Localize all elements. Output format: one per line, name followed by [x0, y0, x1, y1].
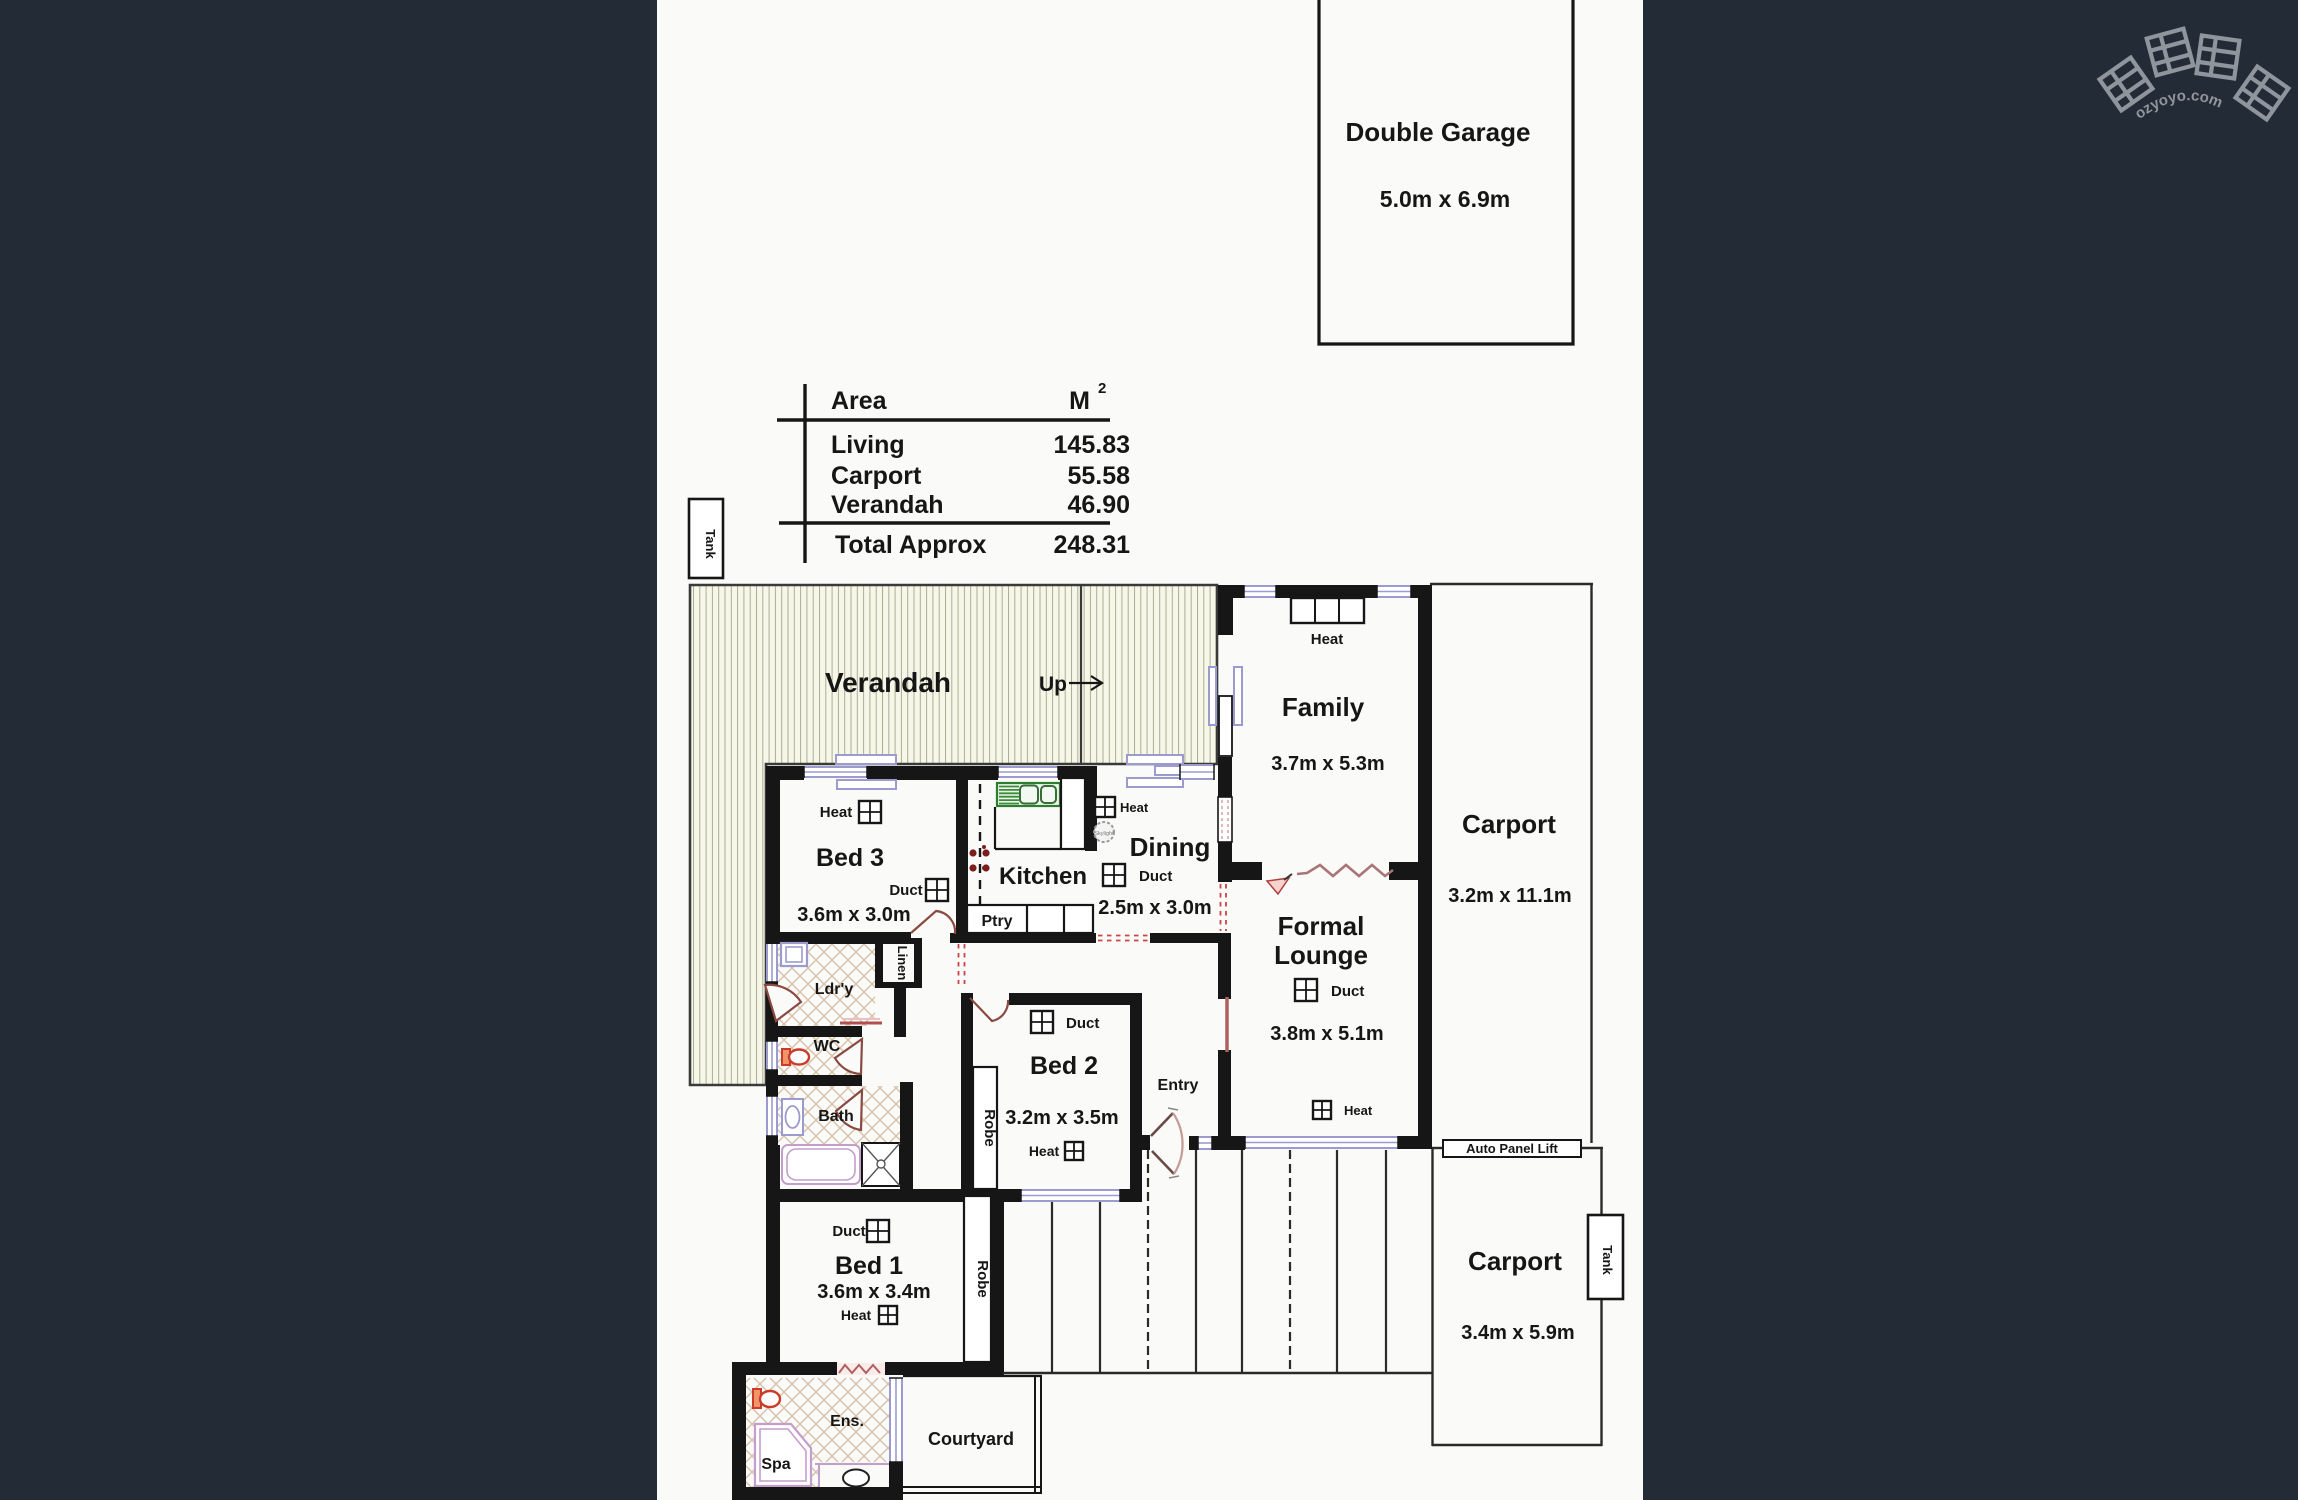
- svg-text:3.7m x 5.3m: 3.7m x 5.3m: [1271, 753, 1384, 775]
- svg-text:Bath: Bath: [818, 1108, 854, 1125]
- svg-text:Verandah: Verandah: [831, 491, 944, 519]
- svg-text:46.90: 46.90: [1067, 491, 1130, 519]
- svg-text:Verandah: Verandah: [825, 667, 951, 698]
- svg-text:WC: WC: [814, 1038, 841, 1055]
- svg-text:Family: Family: [1282, 692, 1365, 722]
- svg-text:Auto Panel Lift: Auto Panel Lift: [1466, 1141, 1558, 1156]
- svg-text:Total Approx: Total Approx: [835, 531, 986, 559]
- svg-text:M: M: [1069, 387, 1090, 415]
- svg-text:Duct: Duct: [889, 882, 922, 899]
- svg-text:Bed 2: Bed 2: [1030, 1052, 1098, 1080]
- svg-text:3.4m x 5.9m: 3.4m x 5.9m: [1461, 1322, 1574, 1344]
- svg-text:Tank: Tank: [703, 529, 718, 559]
- svg-text:Heat: Heat: [1344, 1103, 1373, 1118]
- svg-text:3.6m x 3.4m: 3.6m x 3.4m: [817, 1281, 930, 1303]
- svg-text:3.2m x 3.5m: 3.2m x 3.5m: [1005, 1107, 1118, 1129]
- svg-text:Heat: Heat: [820, 804, 853, 821]
- svg-text:Carport: Carport: [831, 462, 922, 490]
- svg-text:55.58: 55.58: [1067, 462, 1130, 490]
- svg-text:Living: Living: [831, 431, 905, 459]
- svg-text:Ldr'y: Ldr'y: [815, 981, 854, 998]
- svg-text:Bed 1: Bed 1: [835, 1252, 903, 1280]
- svg-text:Heat: Heat: [841, 1307, 872, 1323]
- svg-text:Heat: Heat: [1120, 800, 1149, 815]
- svg-text:Duct: Duct: [1139, 868, 1172, 885]
- svg-text:Robe: Robe: [974, 1260, 991, 1298]
- svg-text:Linen: Linen: [895, 946, 910, 981]
- svg-text:Carport: Carport: [1462, 809, 1556, 839]
- svg-text:Ptry: Ptry: [981, 913, 1012, 930]
- svg-text:2.5m x 3.0m: 2.5m x 3.0m: [1098, 897, 1211, 919]
- svg-text:145.83: 145.83: [1054, 431, 1130, 459]
- svg-text:3.2m x 11.1m: 3.2m x 11.1m: [1448, 885, 1571, 907]
- svg-text:Spa: Spa: [761, 1456, 790, 1473]
- svg-text:3.8m x 5.1m: 3.8m x 5.1m: [1270, 1023, 1383, 1045]
- svg-text:Kitchen: Kitchen: [999, 863, 1087, 890]
- svg-text:Courtyard: Courtyard: [928, 1429, 1014, 1449]
- svg-text:Tank: Tank: [1600, 1245, 1615, 1275]
- svg-text:Lounge: Lounge: [1274, 940, 1368, 970]
- svg-text:Up: Up: [1039, 673, 1067, 696]
- svg-text:Area: Area: [831, 387, 888, 415]
- svg-text:Dining: Dining: [1130, 832, 1211, 862]
- svg-text:Robe: Robe: [981, 1109, 998, 1147]
- svg-text:5.0m x 6.9m: 5.0m x 6.9m: [1380, 186, 1510, 212]
- svg-text:Duct: Duct: [1331, 983, 1364, 1000]
- svg-text:2: 2: [1098, 380, 1106, 397]
- svg-text:Heat: Heat: [1311, 631, 1344, 648]
- svg-text:Duct: Duct: [832, 1223, 865, 1240]
- svg-text:Heat: Heat: [1029, 1143, 1060, 1159]
- svg-text:Formal: Formal: [1278, 911, 1365, 941]
- svg-text:Duct: Duct: [1066, 1015, 1099, 1032]
- svg-text:3.6m x 3.0m: 3.6m x 3.0m: [797, 904, 910, 926]
- svg-text:248.31: 248.31: [1054, 531, 1131, 559]
- svg-text:Carport: Carport: [1468, 1246, 1562, 1276]
- svg-text:Ens.: Ens.: [830, 1413, 864, 1430]
- svg-text:Skylight: Skylight: [1094, 831, 1114, 837]
- svg-text:Double Garage: Double Garage: [1346, 117, 1531, 147]
- svg-text:Entry: Entry: [1158, 1077, 1199, 1094]
- svg-text:Bed 3: Bed 3: [816, 844, 884, 872]
